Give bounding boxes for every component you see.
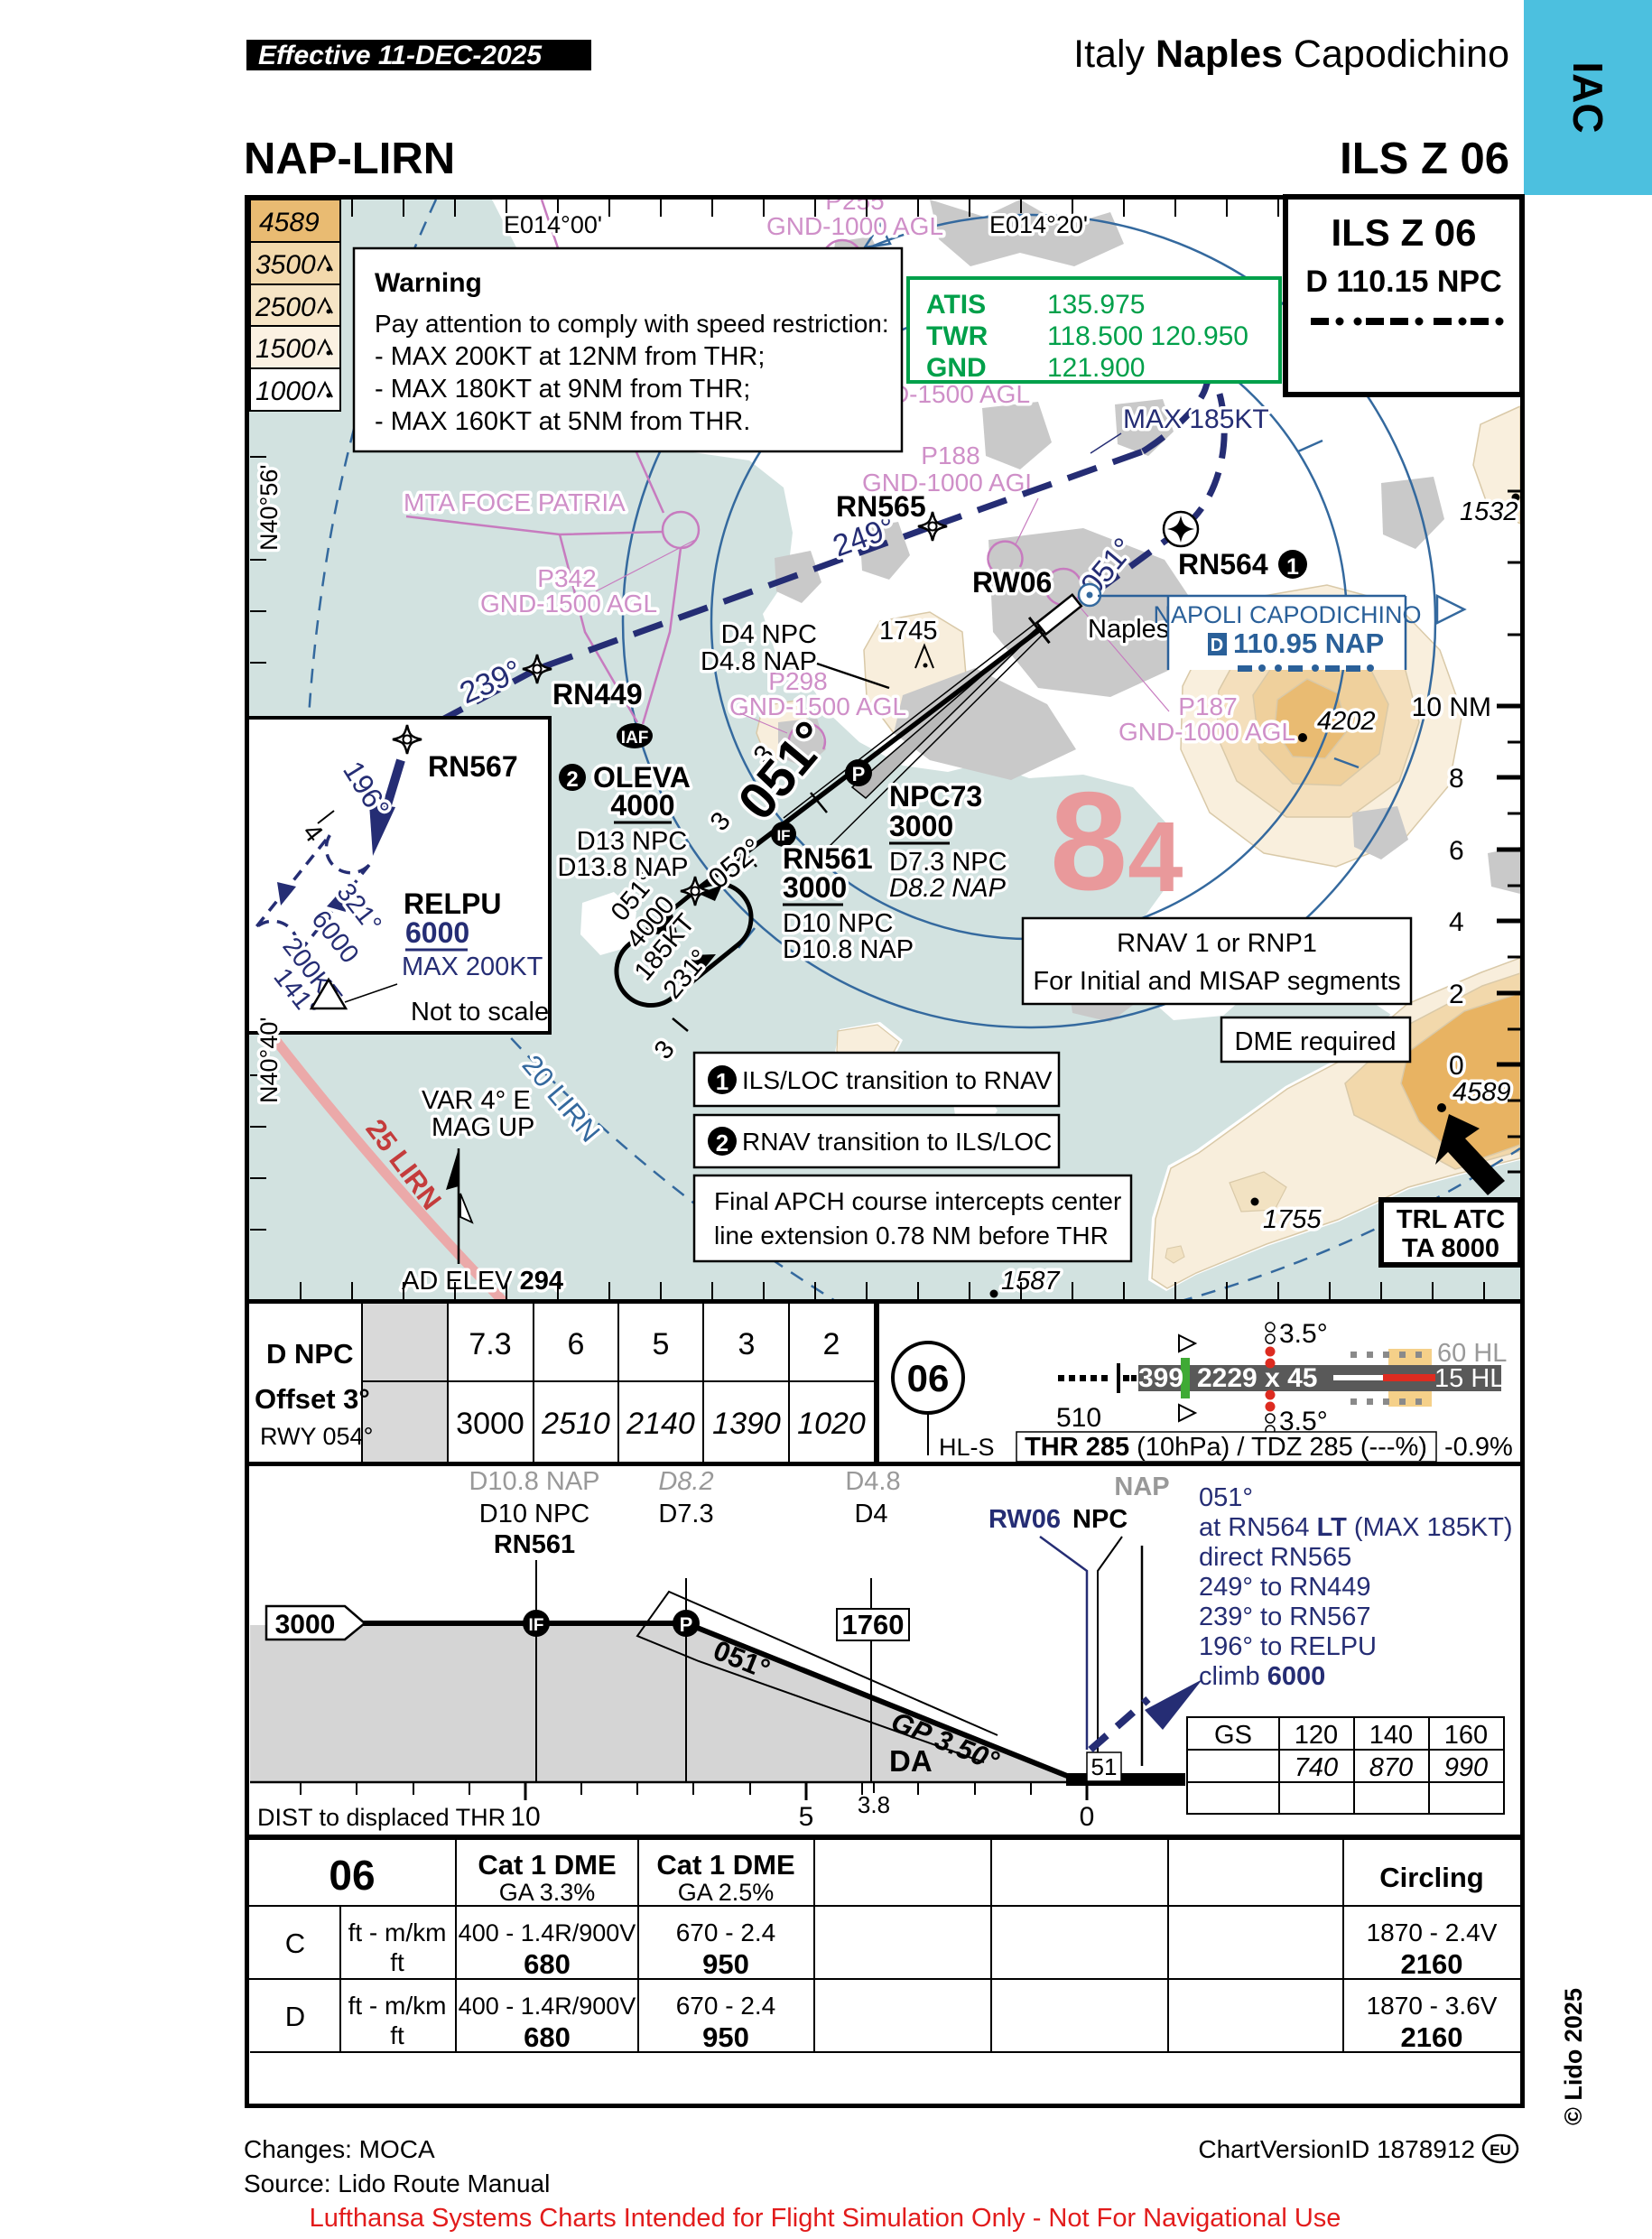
svg-text:RW06: RW06 [972, 566, 1052, 599]
svg-text:IAF: IAF [621, 729, 649, 748]
svg-text:2: 2 [1449, 980, 1464, 1009]
svg-text:TA 8000: TA 8000 [1402, 1234, 1499, 1263]
svg-text:P188: P188 [921, 441, 979, 469]
svg-text:D4.8 NAP: D4.8 NAP [701, 647, 817, 676]
svg-text:IAC: IAC [1564, 61, 1611, 133]
svg-text:GND-1500 AGL: GND-1500 AGL [480, 590, 657, 618]
svg-text:51: 51 [1091, 1753, 1118, 1780]
svg-text:Lufthansa Systems Charts Inten: Lufthansa Systems Charts Intended for Fl… [310, 2204, 1341, 2233]
svg-text:1500: 1500 [255, 334, 316, 364]
svg-text:D10 NPC: D10 NPC [783, 909, 894, 938]
svg-text:GS: GS [1214, 1721, 1252, 1750]
svg-text:HL-S: HL-S [939, 1434, 995, 1461]
svg-text:© Lido 2025: © Lido 2025 [1560, 1988, 1587, 2125]
svg-text:Not to scale: Not to scale [411, 998, 549, 1027]
svg-text:N40°56': N40°56' [255, 464, 283, 551]
svg-text:1760: 1760 [842, 1609, 905, 1640]
svg-text:6000: 6000 [405, 916, 469, 949]
svg-text:- MAX 160KT at 5NM from THR.: - MAX 160KT at 5NM from THR. [375, 407, 750, 436]
svg-text:990: 990 [1444, 1753, 1488, 1782]
svg-text:D8.2: D8.2 [658, 1467, 713, 1496]
svg-text:RWY 054°: RWY 054° [260, 1423, 373, 1450]
svg-text:051°: 051° [1199, 1483, 1253, 1512]
svg-text:1532: 1532 [1460, 497, 1518, 526]
svg-text:MAX 185KT: MAX 185KT [1123, 404, 1269, 434]
svg-text:510: 510 [1056, 1403, 1101, 1433]
svg-text:- MAX 200KT at 12NM from THR;: - MAX 200KT at 12NM from THR; [375, 342, 765, 371]
svg-text:RW06: RW06 [988, 1505, 1061, 1534]
svg-text:1000: 1000 [255, 376, 316, 406]
svg-text:0: 0 [1080, 1802, 1095, 1832]
svg-text:D13.8 NAP: D13.8 NAP [557, 853, 688, 882]
svg-text:D8.2 NAP: D8.2 NAP [889, 874, 1007, 903]
svg-text:MAG UP: MAG UP [432, 1113, 534, 1142]
svg-text:670 - 2.4: 670 - 2.4 [676, 1992, 776, 2020]
svg-text:239° to RN567: 239° to RN567 [1199, 1603, 1371, 1631]
svg-text:D: D [1211, 636, 1223, 655]
svg-text:06: 06 [329, 1852, 375, 1899]
svg-text:60 HL: 60 HL [1437, 1339, 1507, 1368]
svg-text:140: 140 [1369, 1721, 1413, 1750]
svg-text:RNAV 1 or RNP1: RNAV 1 or RNP1 [1117, 929, 1317, 958]
svg-text:RN449: RN449 [552, 678, 643, 711]
svg-text:399: 399 [1138, 1363, 1183, 1393]
svg-text:1390: 1390 [712, 1407, 781, 1441]
svg-text:3000: 3000 [456, 1407, 524, 1441]
svg-text:NAPOLI CAPODICHINO: NAPOLI CAPODICHINO [1153, 601, 1421, 628]
svg-text:D7.3 NPC: D7.3 NPC [889, 848, 1007, 877]
svg-text:6: 6 [568, 1327, 585, 1361]
svg-text:GND-1000 AGL: GND-1000 AGL [1118, 718, 1295, 746]
svg-text:MAX 200KT: MAX 200KT [402, 952, 543, 981]
svg-text:AD ELEV 294: AD ELEV 294 [402, 1267, 563, 1296]
svg-text:7.3: 7.3 [469, 1327, 511, 1361]
svg-text:1587: 1587 [1001, 1267, 1061, 1296]
svg-text:D NPC: D NPC [266, 1338, 353, 1370]
svg-text:P: P [680, 1613, 693, 1636]
svg-text:2: 2 [823, 1327, 840, 1361]
svg-text:120: 120 [1295, 1721, 1338, 1750]
svg-text:4202: 4202 [1317, 707, 1376, 736]
svg-text:Italy Naples Capodichino: Italy Naples Capodichino [1073, 33, 1509, 76]
svg-text:RN564: RN564 [1178, 548, 1268, 581]
svg-text:P: P [852, 763, 866, 785]
svg-text:3.8: 3.8 [858, 1791, 890, 1818]
svg-text:4: 4 [1449, 907, 1464, 937]
svg-text:3500: 3500 [255, 250, 316, 280]
svg-text:at RN564 LT (MAX 185KT): at RN564 LT (MAX 185KT) [1199, 1513, 1513, 1542]
svg-text:line extension 0.78 NM before: line extension 0.78 NM before THR [714, 1222, 1109, 1250]
svg-text:110.95 NAP: 110.95 NAP [1233, 627, 1384, 659]
svg-text:740: 740 [1295, 1753, 1338, 1782]
svg-text:249° to RN449: 249° to RN449 [1199, 1573, 1371, 1602]
svg-text:Source: Lido Route Manual: Source: Lido Route Manual [244, 2169, 550, 2197]
svg-text:5: 5 [799, 1802, 814, 1832]
svg-text:2160: 2160 [1401, 2021, 1463, 2053]
svg-text:4589: 4589 [1452, 1078, 1511, 1107]
svg-text:E014°20': E014°20' [989, 211, 1088, 238]
svg-text:1745: 1745 [879, 617, 938, 646]
svg-text:E014°00': E014°00' [504, 211, 602, 238]
svg-text:680: 680 [524, 1948, 571, 1980]
svg-text:GA 3.3%: GA 3.3% [499, 1879, 596, 1906]
svg-text:15 HL: 15 HL [1434, 1364, 1504, 1393]
svg-text:P342: P342 [537, 564, 596, 592]
svg-text:400 - 1.4R/900V: 400 - 1.4R/900V [459, 1919, 636, 1946]
svg-text:D10 NPC: D10 NPC [479, 1500, 590, 1528]
svg-text:- MAX 180KT at 9NM from THR;: - MAX 180KT at 9NM from THR; [375, 375, 750, 404]
svg-text:D7.3: D7.3 [658, 1500, 713, 1528]
svg-text:160: 160 [1444, 1721, 1488, 1750]
svg-text:2510: 2510 [541, 1407, 610, 1441]
svg-text:Cat 1 DME: Cat 1 DME [656, 1849, 794, 1881]
svg-text:ft - m/km: ft - m/km [348, 1918, 447, 1946]
svg-text:D10.8 NAP: D10.8 NAP [469, 1467, 599, 1496]
svg-text:ATIS: ATIS [926, 290, 986, 320]
svg-text:THR 285 (10hPa) / TDZ 285 (---: THR 285 (10hPa) / TDZ 285 (---%) [1025, 1433, 1427, 1462]
svg-text:Pay attention to comply with s: Pay attention to comply with speed restr… [375, 310, 889, 338]
svg-text:950: 950 [702, 1948, 749, 1980]
svg-text:1870 - 3.6V: 1870 - 3.6V [1367, 1992, 1498, 2020]
svg-text:D4.8: D4.8 [845, 1467, 900, 1496]
svg-text:GND: GND [926, 353, 987, 383]
svg-text:2500: 2500 [255, 293, 316, 322]
svg-text:ft - m/km: ft - m/km [348, 1992, 447, 2020]
svg-text:Changes: MOCA: Changes: MOCA [244, 2135, 435, 2163]
svg-text:N40°40': N40°40' [255, 1017, 283, 1103]
svg-text:Offset 3°: Offset 3° [255, 1383, 370, 1415]
svg-text:NAP: NAP [1114, 1473, 1169, 1501]
svg-text:IF: IF [529, 1616, 544, 1635]
svg-text:8: 8 [1449, 764, 1464, 794]
svg-text:06: 06 [907, 1357, 950, 1399]
svg-text:GA 2.5%: GA 2.5% [678, 1879, 775, 1906]
svg-text:C: C [285, 1928, 305, 1959]
svg-text:121.900: 121.900 [1047, 353, 1145, 383]
svg-text:GND-1000 AGL: GND-1000 AGL [766, 212, 943, 240]
svg-text:TRL ATC: TRL ATC [1397, 1205, 1505, 1234]
svg-text:4589: 4589 [259, 208, 320, 237]
svg-text:DME required: DME required [1235, 1027, 1397, 1056]
svg-text:870: 870 [1369, 1753, 1413, 1782]
svg-text:680: 680 [524, 2021, 571, 2053]
svg-text:P255: P255 [825, 187, 884, 215]
svg-text:6: 6 [1449, 836, 1464, 866]
svg-text:RN567: RN567 [428, 750, 518, 783]
svg-text:ChartVersionID 1878912: ChartVersionID 1878912 [1198, 2135, 1475, 2163]
svg-text:-0.9%: -0.9% [1444, 1433, 1513, 1462]
svg-text:ILS Z 06: ILS Z 06 [1340, 135, 1509, 183]
svg-text:Cat 1 DME: Cat 1 DME [478, 1849, 616, 1881]
svg-text:1: 1 [716, 1068, 729, 1095]
svg-text:Final APCH course intercepts c: Final APCH course intercepts center [714, 1187, 1121, 1215]
svg-text:1755: 1755 [1263, 1205, 1322, 1234]
svg-text:RNAV transition to ILS/LOC: RNAV transition to ILS/LOC [742, 1128, 1052, 1156]
svg-text:D4 NPC: D4 NPC [721, 620, 817, 649]
svg-text:For Initial and MISAP segments: For Initial and MISAP segments [1033, 967, 1400, 996]
svg-text:2229 x 45: 2229 x 45 [1197, 1363, 1317, 1393]
svg-text:10: 10 [510, 1802, 540, 1832]
svg-text:NPC73: NPC73 [889, 780, 982, 813]
svg-text:Effective 11-DEC-2025: Effective 11-DEC-2025 [258, 41, 543, 70]
svg-text:climb 6000: climb 6000 [1199, 1662, 1325, 1691]
svg-text:Circling: Circling [1379, 1862, 1483, 1893]
svg-text:DIST to displaced THR: DIST to displaced THR [257, 1804, 506, 1831]
svg-text:4000: 4000 [610, 789, 674, 822]
svg-text:MTA FOCE PATRIA: MTA FOCE PATRIA [404, 488, 626, 516]
svg-text:2: 2 [566, 767, 578, 792]
svg-text:ft: ft [390, 2021, 404, 2049]
svg-text:direct RN565: direct RN565 [1199, 1543, 1351, 1572]
svg-text:196° to RELPU: 196° to RELPU [1199, 1632, 1377, 1661]
svg-text:1020: 1020 [797, 1407, 866, 1441]
svg-text:ILS/LOC transition to RNAV: ILS/LOC transition to RNAV [742, 1066, 1053, 1094]
svg-text:D 110.15 NPC: D 110.15 NPC [1305, 265, 1501, 299]
svg-text:ILS Z 06: ILS Z 06 [1331, 211, 1476, 254]
svg-text:GND-1500 AGL: GND-1500 AGL [729, 692, 906, 720]
svg-text:ft: ft [390, 1948, 404, 1976]
svg-text:3000: 3000 [275, 1610, 336, 1640]
svg-text:D10.8 NAP: D10.8 NAP [783, 935, 914, 964]
svg-text:RELPU: RELPU [404, 887, 501, 920]
svg-text:5: 5 [653, 1327, 670, 1361]
svg-text:3.5°: 3.5° [1279, 1319, 1328, 1349]
svg-text:2160: 2160 [1401, 1948, 1463, 1980]
svg-text:950: 950 [702, 2021, 749, 2053]
svg-text:10 NM: 10 NM [1412, 692, 1491, 722]
svg-text:1870 - 2.4V: 1870 - 2.4V [1367, 1918, 1498, 1946]
svg-text:400 - 1.4R/900V: 400 - 1.4R/900V [459, 1993, 636, 2020]
svg-text:0: 0 [1449, 1051, 1464, 1081]
svg-text:DA: DA [889, 1744, 933, 1778]
svg-text:VAR 4° E: VAR 4° E [422, 1086, 531, 1115]
svg-text:RN565: RN565 [836, 490, 926, 523]
svg-text:P187: P187 [1178, 692, 1237, 720]
svg-text:3: 3 [738, 1327, 756, 1361]
svg-text:D4: D4 [854, 1500, 887, 1528]
svg-text:2140: 2140 [626, 1407, 695, 1441]
svg-text:D13 NPC: D13 NPC [577, 827, 688, 856]
svg-text:670 - 2.4: 670 - 2.4 [676, 1918, 776, 1946]
svg-text:EU: EU [1490, 2141, 1511, 2159]
svg-text:3000: 3000 [783, 871, 847, 904]
svg-text:Warning: Warning [375, 268, 482, 298]
svg-text:1: 1 [1286, 554, 1299, 580]
svg-text:2: 2 [716, 1129, 729, 1157]
svg-text:RN561: RN561 [494, 1530, 575, 1559]
svg-text:118.500 120.950: 118.500 120.950 [1047, 321, 1248, 351]
svg-text:RN561: RN561 [783, 842, 873, 875]
svg-text:NPC: NPC [1072, 1505, 1128, 1534]
svg-text:3000: 3000 [889, 810, 953, 842]
svg-text:NAP-LIRN: NAP-LIRN [244, 135, 455, 183]
svg-text:D: D [285, 2001, 305, 2032]
svg-text:135.975: 135.975 [1047, 290, 1145, 320]
svg-text:TWR: TWR [926, 321, 988, 351]
